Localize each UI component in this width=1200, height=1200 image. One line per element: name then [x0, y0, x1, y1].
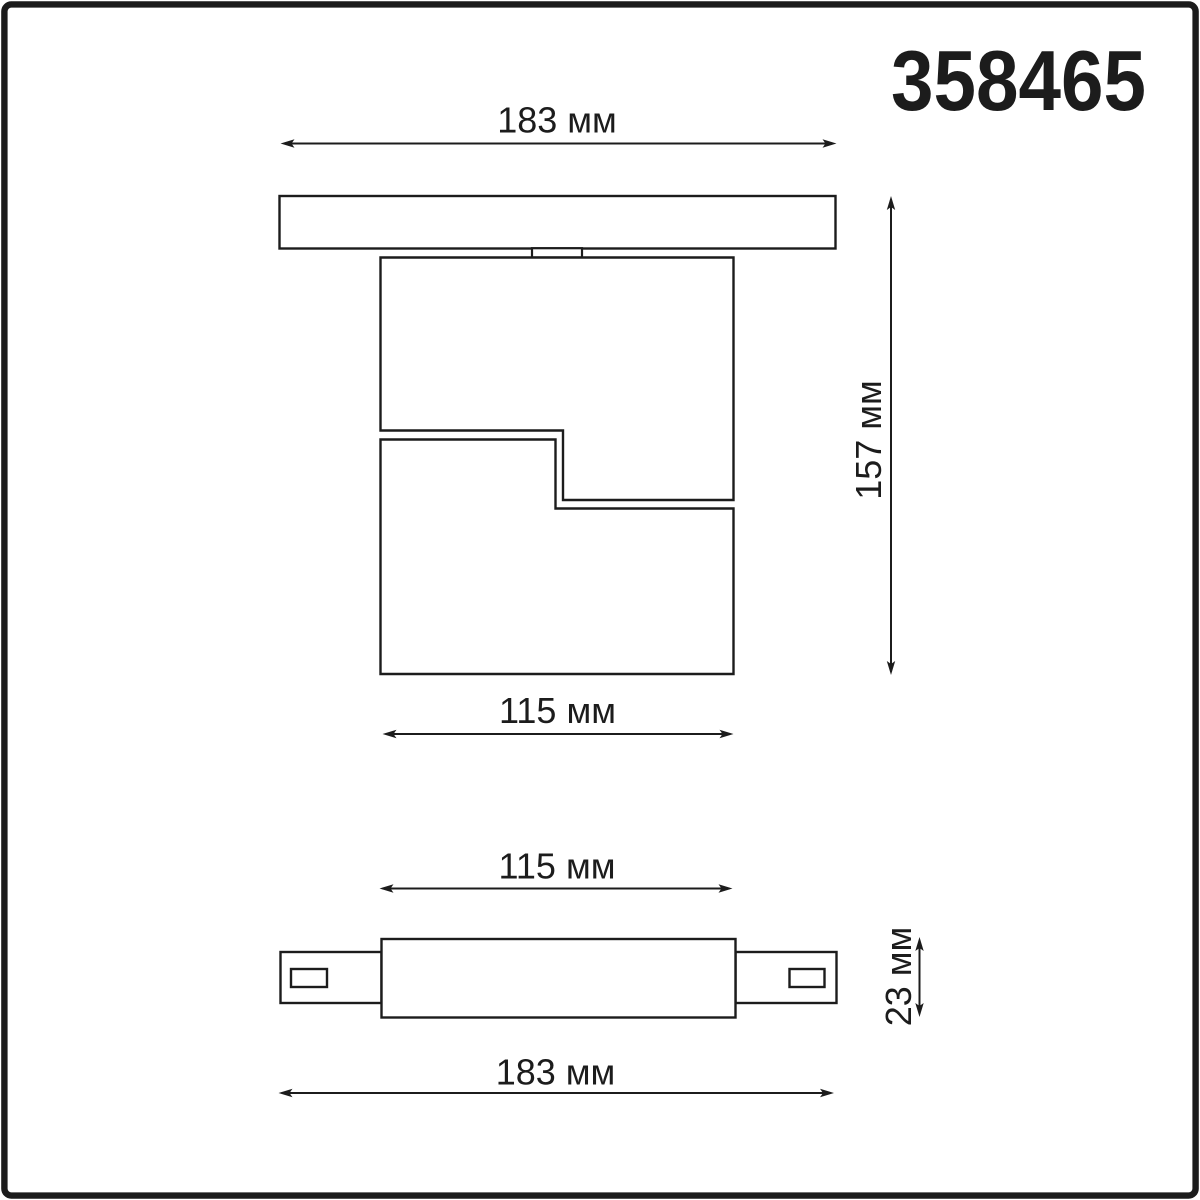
svg-text:115 мм: 115 мм	[499, 846, 616, 887]
svg-text:358465: 358465	[891, 34, 1146, 129]
svg-text:23 мм: 23 мм	[878, 927, 919, 1027]
svg-text:157 мм: 157 мм	[848, 380, 889, 500]
svg-text:183 мм: 183 мм	[496, 1052, 616, 1093]
svg-text:115 мм: 115 мм	[499, 690, 616, 731]
svg-text:183 мм: 183 мм	[497, 100, 617, 141]
